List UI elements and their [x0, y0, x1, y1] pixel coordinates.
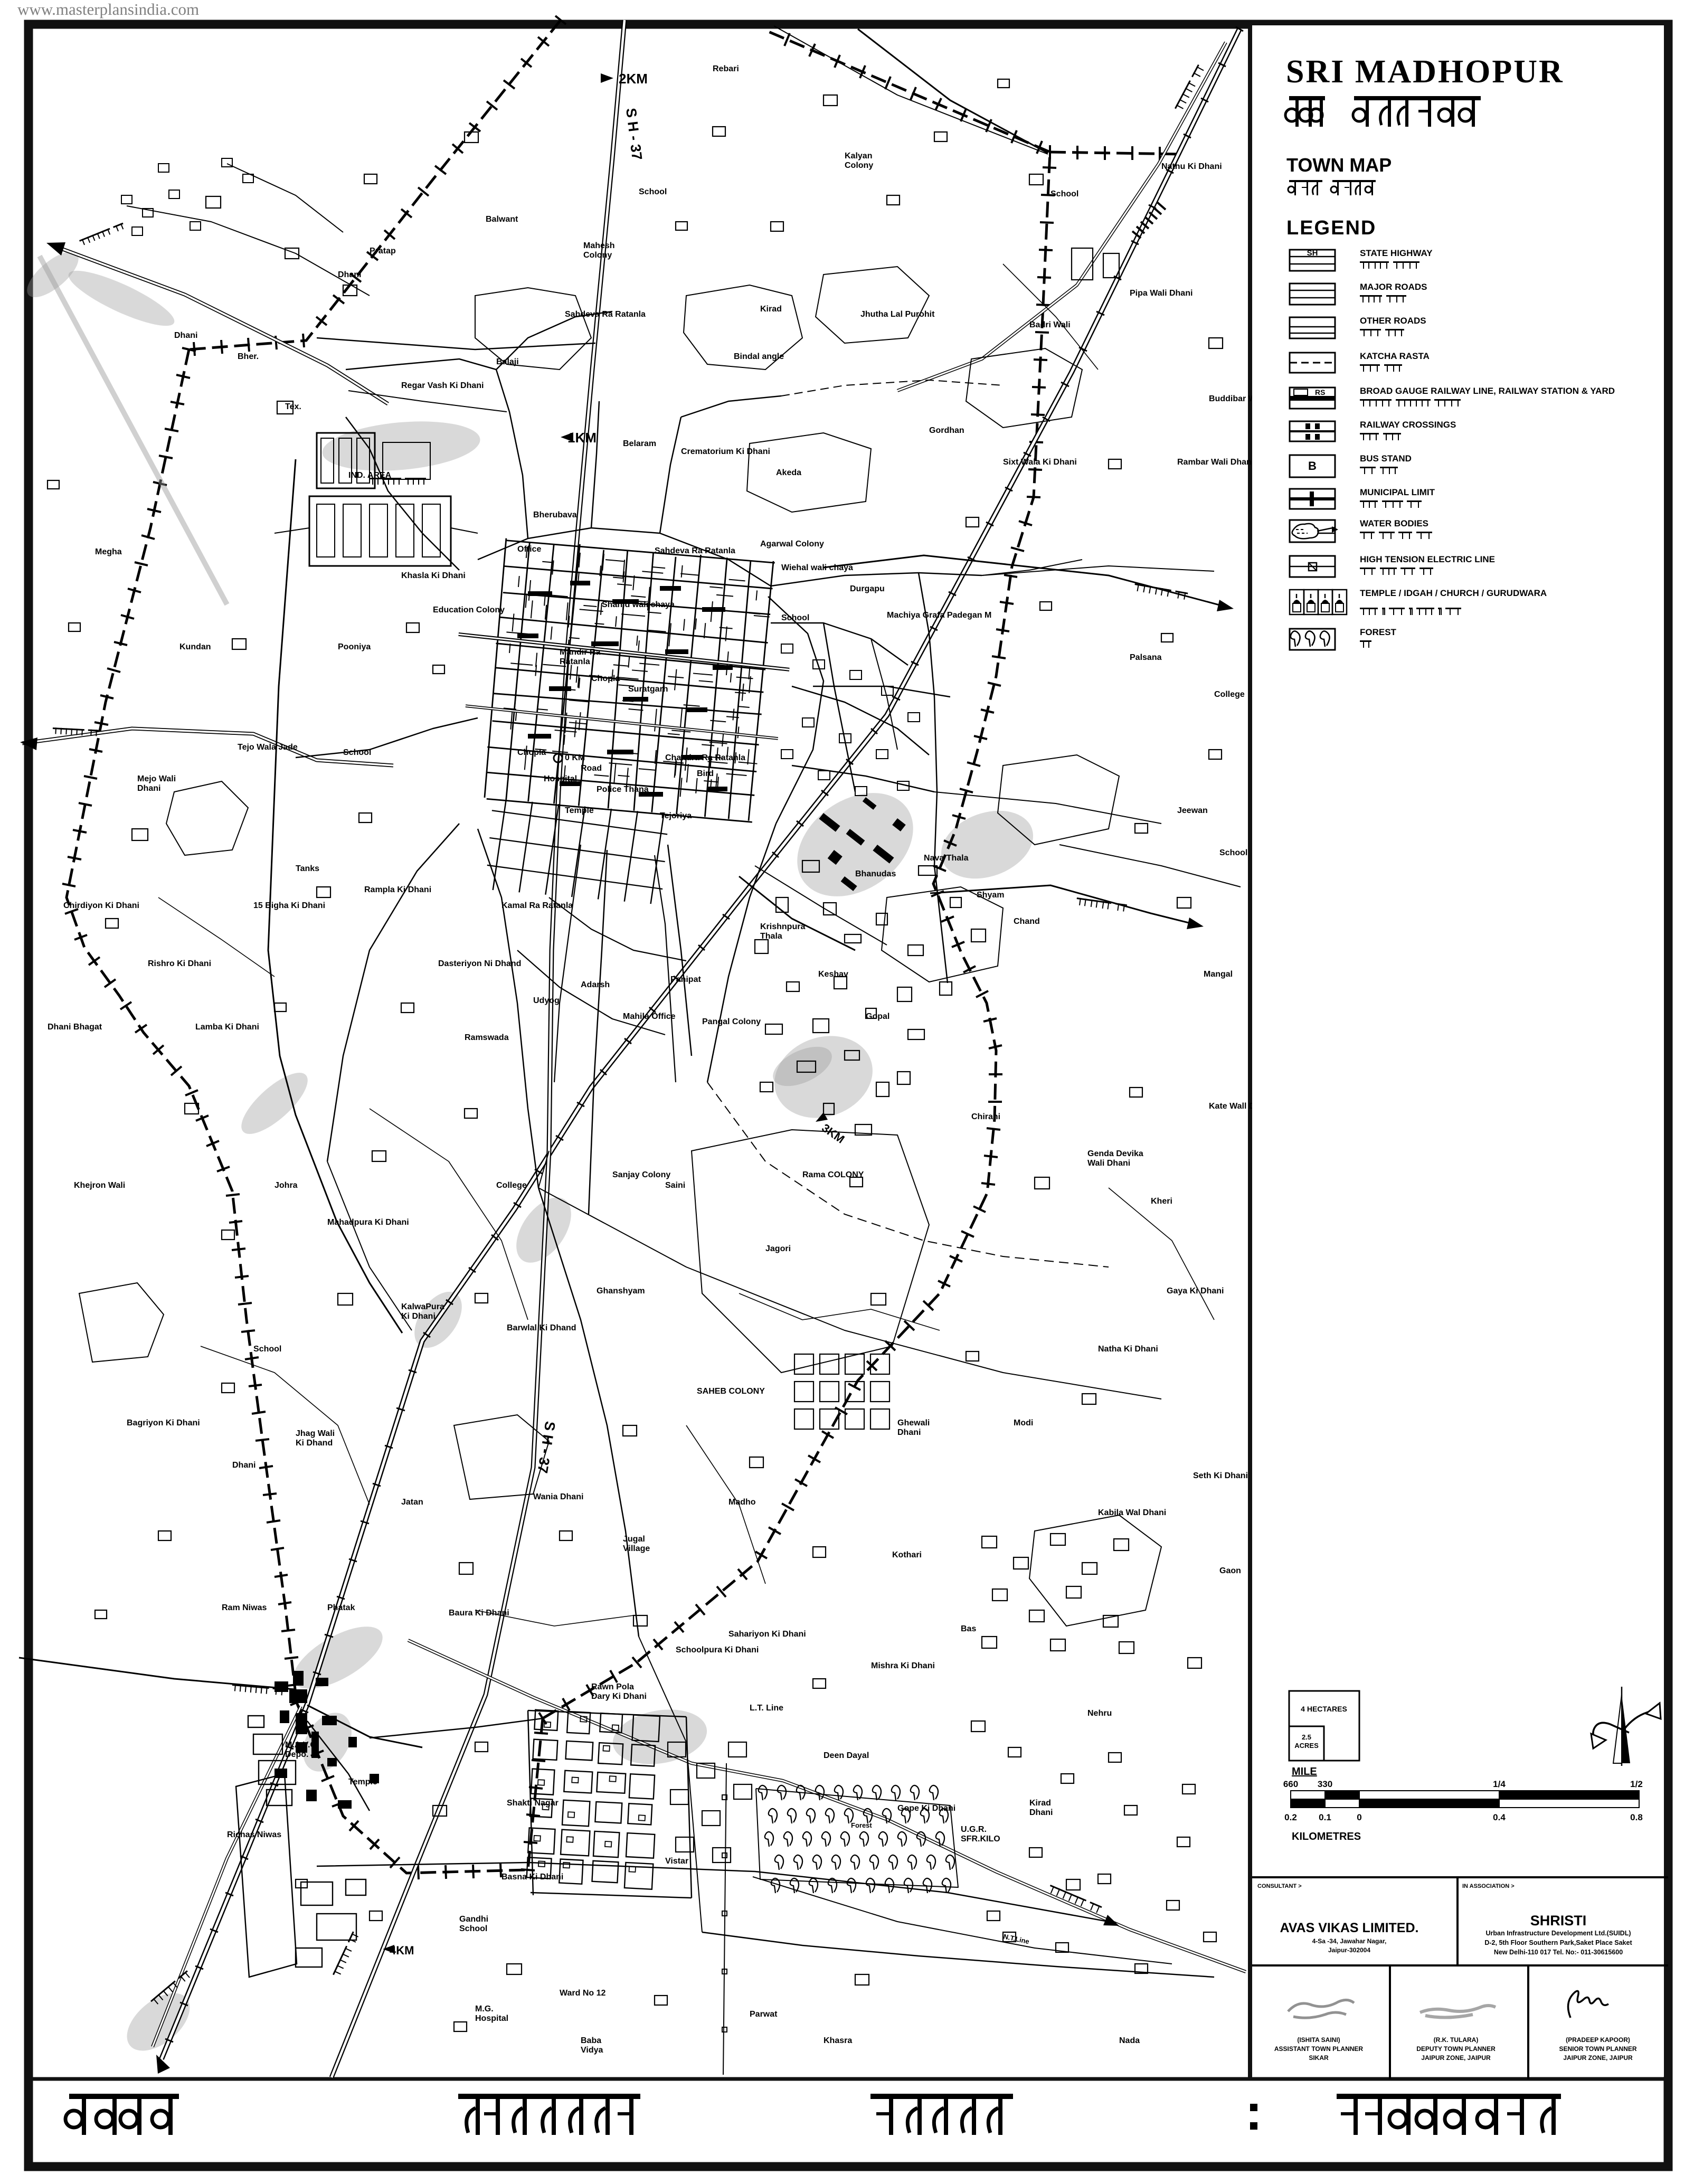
svg-text:U.G.R.: U.G.R. — [961, 1825, 987, 1834]
svg-text:Machiya Grafa Padegan M: Machiya Grafa Padegan M — [887, 611, 991, 620]
svg-text:2.5: 2.5 — [1302, 1733, 1311, 1741]
svg-text:Mejo Wali: Mejo Wali — [137, 774, 176, 783]
svg-text:1/2: 1/2 — [1630, 1779, 1643, 1789]
svg-text:Colony: Colony — [583, 251, 612, 260]
svg-text:Chand: Chand — [1014, 917, 1040, 926]
svg-text:Jeewan: Jeewan — [1177, 806, 1208, 815]
svg-text:Dary Ki Dhani: Dary Ki Dhani — [591, 1692, 647, 1701]
svg-text:Bindal angle: Bindal angle — [734, 352, 784, 361]
svg-text:BROAD GAUGE RAILWAY LINE, RAIL: BROAD GAUGE RAILWAY LINE, RAILWAY STATIO… — [1360, 386, 1615, 396]
svg-text:SIKAR: SIKAR — [1309, 2054, 1329, 2062]
svg-text:Police Thana: Police Thana — [597, 785, 649, 794]
svg-text:Ram Niwas: Ram Niwas — [222, 1603, 267, 1612]
svg-text:Kundan: Kundan — [179, 642, 211, 651]
svg-text:Gandhi: Gandhi — [459, 1915, 488, 1924]
svg-text:Vistar: Vistar — [665, 1857, 688, 1866]
svg-text:Badri Wali: Badri Wali — [1029, 320, 1071, 329]
svg-text:Sanjay Colony: Sanjay Colony — [612, 1170, 670, 1179]
svg-text:TEMPLE / IDGAH / CHURCH / GURU: TEMPLE / IDGAH / CHURCH / GURUDWARA — [1360, 588, 1547, 598]
svg-text:RS: RS — [1315, 388, 1325, 396]
svg-text:Shakti Nagar: Shakti Nagar — [507, 1799, 559, 1808]
svg-text:Jhag Wali: Jhag Wali — [296, 1429, 335, 1438]
svg-text:MUNICIPAL LIMIT: MUNICIPAL LIMIT — [1360, 487, 1435, 497]
svg-text:Depo.: Depo. — [285, 1750, 308, 1759]
svg-text:Krishnpura: Krishnpura — [760, 922, 805, 931]
svg-text:Jugal: Jugal — [623, 1535, 645, 1544]
svg-text:(R.K. TULARA): (R.K. TULARA) — [1434, 2036, 1479, 2044]
svg-text:Mangal: Mangal — [1204, 970, 1233, 979]
svg-text:MAJOR ROADS: MAJOR ROADS — [1360, 282, 1427, 292]
svg-text:Khasla Ki Dhani: Khasla Ki Dhani — [401, 571, 466, 580]
svg-text:Gope Ki Dhani: Gope Ki Dhani — [897, 1804, 955, 1813]
svg-text:Dasteriyon Ni Dhand: Dasteriyon Ni Dhand — [438, 959, 521, 968]
svg-text:Sahariyon Ki Dhani: Sahariyon Ki Dhani — [728, 1630, 806, 1639]
svg-text:WATER BODIES: WATER BODIES — [1360, 518, 1428, 528]
svg-text:Ward No 12: Ward No 12 — [560, 1989, 606, 1998]
svg-text:(ISHITA SAINI): (ISHITA SAINI) — [1297, 2036, 1340, 2044]
svg-text:1KM: 1KM — [567, 430, 597, 446]
svg-text:JAIPUR ZONE, JAIPUR: JAIPUR ZONE, JAIPUR — [1421, 2054, 1491, 2062]
svg-text:Parwat: Parwat — [750, 2010, 778, 2019]
svg-text:Gaya Ki Dhani: Gaya Ki Dhani — [1167, 1287, 1224, 1296]
svg-text:Kalyan: Kalyan — [845, 152, 872, 160]
svg-text:Forest: Forest — [851, 1821, 872, 1829]
svg-text:Mahila Office: Mahila Office — [623, 1012, 676, 1021]
svg-text:Hospital: Hospital — [475, 2014, 508, 2023]
svg-text:TOWN MAP: TOWN MAP — [1286, 154, 1392, 176]
svg-text:Kothari: Kothari — [892, 1550, 922, 1559]
svg-text:Sahdeva Ra Ratanla: Sahdeva Ra Ratanla — [655, 546, 735, 555]
svg-text:Dhani Bhagat: Dhani Bhagat — [48, 1023, 102, 1032]
svg-text:Crematorium Ki Dhani: Crematorium Ki Dhani — [681, 447, 770, 456]
svg-text:Belaram: Belaram — [623, 439, 656, 448]
svg-text:Dhani: Dhani — [897, 1428, 921, 1437]
svg-text:0.4: 0.4 — [1493, 1812, 1506, 1822]
svg-text:0.1: 0.1 — [1319, 1812, 1331, 1822]
svg-text:New Delhi-110 017 Tel. No:- 0: New Delhi-110 017 Tel. No:- 011-30615600 — [1494, 1949, 1623, 1956]
svg-text:IND. AREA: IND. AREA — [348, 471, 392, 480]
svg-text:Rishro Ki Dhani: Rishro Ki Dhani — [148, 959, 211, 968]
svg-text:Wali Dhani: Wali Dhani — [1087, 1159, 1130, 1168]
svg-text:Richas Niwas: Richas Niwas — [227, 1830, 281, 1839]
svg-text:Thala: Thala — [760, 932, 782, 941]
svg-text:Schoolpura Ki Dhani: Schoolpura Ki Dhani — [676, 1646, 759, 1654]
svg-text:Modi: Modi — [1014, 1419, 1033, 1427]
svg-text:660: 660 — [1283, 1779, 1298, 1789]
svg-text:Rambar Wali Dhani: Rambar Wali Dhani — [1177, 458, 1254, 467]
svg-text:KILOMETRES: KILOMETRES — [1292, 1831, 1361, 1842]
svg-text:Seth Ki Dhani: Seth Ki Dhani — [1193, 1471, 1248, 1480]
svg-text:School: School — [781, 613, 809, 622]
svg-text:2KM: 2KM — [619, 71, 648, 87]
svg-text:IN ASSOCIATION >: IN ASSOCIATION > — [1462, 1883, 1515, 1889]
svg-text:School: School — [343, 748, 371, 757]
svg-text:School: School — [639, 187, 667, 196]
svg-text:Khejron Wali: Khejron Wali — [74, 1181, 125, 1190]
svg-text:0 KM: 0 KM — [565, 753, 585, 762]
svg-text:Saini: Saini — [665, 1181, 685, 1190]
svg-text:Kheri: Kheri — [1151, 1197, 1172, 1206]
svg-text:Johra: Johra — [275, 1181, 298, 1190]
svg-text:School: School — [1219, 848, 1247, 857]
svg-text:Ki Dhand: Ki Dhand — [296, 1439, 333, 1448]
svg-text:KATCHA RASTA: KATCHA RASTA — [1360, 351, 1430, 361]
svg-text:Palsana: Palsana — [1130, 653, 1162, 662]
svg-text:Temple: Temple — [348, 1778, 377, 1786]
svg-text:Dhani: Dhani — [174, 331, 197, 340]
svg-text:Nada: Nada — [1119, 2036, 1140, 2045]
svg-text:Vidya: Vidya — [581, 2046, 603, 2055]
svg-text:Pratap: Pratap — [370, 247, 396, 256]
svg-text:DEPUTY TOWN PLANNER: DEPUTY TOWN PLANNER — [1416, 2045, 1496, 2053]
svg-text:(PRADEEP KAPOOR): (PRADEEP KAPOOR) — [1566, 2036, 1630, 2044]
svg-text:M.A.V.C.: M.A.V.C. — [285, 1741, 318, 1750]
svg-text:Village: Village — [623, 1544, 650, 1553]
svg-text:Rama COLONY: Rama COLONY — [802, 1170, 864, 1179]
svg-text:Dhani: Dhani — [338, 270, 361, 279]
svg-text:Shahid wali chaya: Shahid wali chaya — [602, 600, 675, 609]
svg-text:Akeda: Akeda — [776, 468, 801, 477]
svg-text:Ramswada: Ramswada — [465, 1033, 509, 1042]
svg-text:Road: Road — [581, 764, 602, 773]
svg-text:Chirdiyon Ki Dhani: Chirdiyon Ki Dhani — [63, 901, 139, 910]
svg-text:Tex.: Tex. — [285, 402, 301, 411]
svg-text:Gaon: Gaon — [1219, 1566, 1241, 1575]
svg-text:Regar Vash Ki Dhani: Regar Vash Ki Dhani — [401, 381, 484, 390]
svg-text:Ratanla: Ratanla — [560, 657, 590, 666]
svg-text:Udyog: Udyog — [533, 996, 560, 1005]
svg-text:CONSULTANT >: CONSULTANT > — [1257, 1883, 1302, 1889]
svg-text:AVAS VIKAS LIMITED.: AVAS VIKAS LIMITED. — [1280, 1921, 1419, 1935]
svg-text:Nava Thala: Nava Thala — [924, 854, 969, 863]
svg-text:4-Sa -34, Jawahar Nagar,: 4-Sa -34, Jawahar Nagar, — [1312, 1937, 1387, 1945]
svg-text:School: School — [459, 1924, 487, 1933]
svg-text:M.G.: M.G. — [475, 2005, 494, 2013]
svg-text:Wania Dhani: Wania Dhani — [533, 1492, 583, 1501]
svg-text:Tejoriya: Tejoriya — [660, 811, 692, 820]
svg-text:Kamal Ra Ratanla: Kamal Ra Ratanla — [501, 901, 573, 910]
svg-text:SAHEB COLONY: SAHEB COLONY — [697, 1387, 765, 1396]
svg-text:Nathu Ki Dhani: Nathu Ki Dhani — [1161, 162, 1222, 171]
svg-text:KalwaPura: KalwaPura — [401, 1302, 444, 1311]
svg-text:Shyam: Shyam — [977, 891, 1004, 900]
svg-text:Dhani: Dhani — [232, 1461, 255, 1470]
svg-text:HIGH TENSION ELECTRIC LINE: HIGH TENSION ELECTRIC LINE — [1360, 554, 1495, 564]
svg-text:www.masterplansindia.com: www.masterplansindia.com — [17, 0, 199, 18]
svg-text:Sixt Wala Ki Dhani: Sixt Wala Ki Dhani — [1003, 458, 1077, 467]
svg-text:Gordhan: Gordhan — [929, 426, 964, 435]
svg-text:Deen Dayal: Deen Dayal — [824, 1751, 869, 1760]
svg-text:Chandra Ra Ratanla: Chandra Ra Ratanla — [665, 753, 745, 762]
svg-text:Dhani: Dhani — [137, 784, 160, 793]
svg-text:Kirad: Kirad — [760, 305, 782, 314]
svg-text:Baba: Baba — [581, 2036, 601, 2045]
svg-text:Mishra Ki Dhani: Mishra Ki Dhani — [871, 1661, 935, 1670]
svg-text:Chopla: Chopla — [591, 674, 620, 683]
svg-text:Tanks: Tanks — [296, 864, 319, 873]
svg-text:BUS STAND: BUS STAND — [1360, 453, 1412, 464]
svg-text:School: School — [253, 1345, 281, 1354]
svg-text:College: College — [496, 1181, 527, 1190]
svg-text:Jaipur-302004: Jaipur-302004 — [1328, 1946, 1370, 1954]
svg-text:Bhanudas: Bhanudas — [855, 869, 896, 878]
svg-text:Ghewali: Ghewali — [897, 1419, 930, 1427]
svg-text:Ki Dhani: Ki Dhani — [401, 1312, 436, 1321]
svg-text:B: B — [1308, 459, 1317, 472]
svg-text:Sahdeva Ra Ratanla: Sahdeva Ra Ratanla — [565, 310, 646, 319]
svg-text:Genda Devika: Genda Devika — [1087, 1149, 1143, 1158]
svg-text:Khasra: Khasra — [824, 2036, 852, 2045]
svg-text:1/4: 1/4 — [1493, 1779, 1506, 1789]
svg-text:Madho: Madho — [728, 1498, 756, 1507]
svg-text:Lamba Ki Dhani: Lamba Ki Dhani — [195, 1023, 259, 1032]
svg-text:Rampla Ki Dhani: Rampla Ki Dhani — [364, 885, 431, 894]
svg-text:Agarwal Colony: Agarwal Colony — [760, 540, 824, 549]
svg-text:4KM: 4KM — [390, 1944, 414, 1957]
svg-text:Urban Infrastructure Developm: Urban Infrastructure Development Ltd.(SU… — [1485, 1930, 1631, 1937]
svg-text:Kabila Wal Dhani: Kabila Wal Dhani — [1098, 1508, 1166, 1517]
svg-text:Panipat: Panipat — [670, 975, 701, 984]
svg-text:0: 0 — [1357, 1812, 1361, 1822]
svg-text:Wiehal wali chaya: Wiehal wali chaya — [781, 563, 853, 572]
svg-text:0.8: 0.8 — [1630, 1812, 1643, 1822]
svg-text:Chirani: Chirani — [971, 1112, 1000, 1121]
svg-text:SHRISTI: SHRISTI — [1530, 1913, 1587, 1928]
svg-text:Jhutha Lal Purohit: Jhutha Lal Purohit — [860, 310, 935, 319]
svg-text:College: College — [1214, 690, 1245, 699]
svg-text:Pooniya: Pooniya — [338, 642, 371, 651]
svg-text:Pipa Wali Dhani: Pipa Wali Dhani — [1130, 289, 1193, 298]
svg-text:FOREST: FOREST — [1360, 627, 1397, 637]
svg-text:Jatan: Jatan — [401, 1498, 423, 1507]
svg-text:Colony: Colony — [845, 161, 873, 170]
svg-text:Temple: Temple — [565, 806, 594, 815]
svg-text:Office: Office — [517, 545, 541, 554]
svg-text:SRI MADHOPUR: SRI MADHOPUR — [1286, 54, 1564, 90]
svg-text:SH: SH — [1307, 249, 1318, 258]
svg-text:Adarsh: Adarsh — [581, 980, 610, 989]
svg-text:Balwant: Balwant — [486, 215, 518, 224]
svg-text:Bird: Bird — [697, 769, 714, 778]
svg-text:Barwlal Ki Dhand: Barwlal Ki Dhand — [507, 1323, 576, 1332]
svg-text:Hospital: Hospital — [544, 774, 577, 783]
svg-text:Nehru: Nehru — [1087, 1709, 1112, 1718]
svg-text:Keshav: Keshav — [818, 970, 848, 979]
svg-text:RAILWAY CROSSINGS: RAILWAY CROSSINGS — [1360, 420, 1456, 430]
svg-text:Natha Ki Dhani: Natha Ki Dhani — [1098, 1345, 1158, 1354]
svg-text:Ghanshyam: Ghanshyam — [597, 1287, 645, 1296]
svg-text:STATE HIGHWAY: STATE HIGHWAY — [1360, 248, 1433, 258]
svg-text:ASSISTANT TOWN PLANNER: ASSISTANT TOWN PLANNER — [1274, 2045, 1364, 2053]
svg-text:Balaji: Balaji — [496, 357, 519, 366]
svg-text:Kirad: Kirad — [1029, 1799, 1051, 1808]
svg-text:Tejo Wala Jade: Tejo Wala Jade — [238, 743, 298, 752]
svg-text:Mahesh: Mahesh — [583, 241, 615, 250]
svg-text:Chopla: Chopla — [517, 748, 546, 757]
svg-text:L.T. Line: L.T. Line — [750, 1704, 783, 1713]
svg-text:Phatak: Phatak — [327, 1603, 355, 1612]
svg-text:Durgapu: Durgapu — [850, 584, 885, 593]
svg-text:Gopal: Gopal — [866, 1012, 889, 1021]
svg-text:Rawn Pola: Rawn Pola — [591, 1682, 634, 1691]
svg-text:LEGEND: LEGEND — [1286, 217, 1376, 239]
svg-text:Dhani: Dhani — [1029, 1808, 1053, 1817]
svg-text:Bagriyon Ki Dhani: Bagriyon Ki Dhani — [127, 1419, 200, 1427]
svg-text:Suratgarh: Suratgarh — [628, 685, 668, 694]
svg-text:Basna Ki Dhani: Basna Ki Dhani — [501, 1873, 563, 1882]
svg-text:SFR.KILO: SFR.KILO — [961, 1835, 1000, 1843]
svg-text:Pangal Colony: Pangal Colony — [702, 1017, 761, 1026]
svg-text:Bher.: Bher. — [238, 352, 259, 361]
svg-text:SENIOR TOWN PLANNER: SENIOR TOWN PLANNER — [1559, 2045, 1636, 2053]
svg-text:School: School — [1051, 190, 1078, 198]
svg-text:Education Colony: Education Colony — [433, 606, 505, 614]
svg-text:Megha: Megha — [95, 547, 122, 556]
svg-text:0.2: 0.2 — [1284, 1812, 1297, 1822]
svg-text:15 Bigha Ki Dhani: 15 Bigha Ki Dhani — [253, 901, 325, 910]
svg-text:Jagori: Jagori — [765, 1244, 791, 1253]
svg-text:OTHER ROADS: OTHER ROADS — [1360, 316, 1426, 326]
svg-text:Baura Ki Dhani: Baura Ki Dhani — [449, 1609, 509, 1618]
svg-text:Bas: Bas — [961, 1624, 976, 1633]
svg-text:Bherubava: Bherubava — [533, 510, 577, 519]
svg-text:Mahadpura Ki Dhani: Mahadpura Ki Dhani — [327, 1218, 409, 1227]
svg-text:JAIPUR ZONE, JAIPUR: JAIPUR ZONE, JAIPUR — [1563, 2054, 1633, 2062]
svg-text:ACRES: ACRES — [1294, 1742, 1319, 1750]
svg-text:4 HECTARES: 4 HECTARES — [1301, 1705, 1347, 1713]
svg-text:330: 330 — [1318, 1779, 1332, 1789]
svg-text:MILE: MILE — [1292, 1766, 1317, 1778]
svg-text:D-2, 5th Floor Southern Park,S: D-2, 5th Floor Southern Park,Saket Place… — [1484, 1939, 1632, 1946]
svg-text:Mandir Ra: Mandir Ra — [560, 648, 600, 657]
svg-text:Rebari: Rebari — [713, 64, 739, 73]
